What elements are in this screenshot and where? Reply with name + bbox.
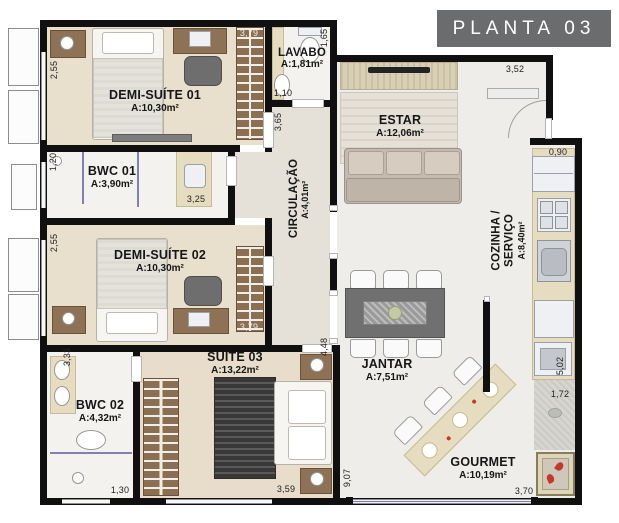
wall: [40, 20, 337, 27]
lamp: [60, 36, 74, 50]
plan-title: PLANTA 03: [437, 10, 611, 47]
burner: [555, 201, 568, 214]
sofa-backrest: [346, 178, 460, 202]
exterior-ledge: [8, 90, 39, 144]
door-opening: [263, 256, 274, 286]
dim-label: 4,48: [319, 332, 329, 362]
tv: [368, 67, 430, 73]
dim-label: 3,25: [181, 194, 211, 204]
door-jamb: [329, 253, 338, 259]
bwc01-sink: [184, 164, 206, 188]
window: [41, 162, 46, 208]
bed-blanket: [97, 239, 167, 309]
wardrobe-demi-suite-02: [236, 246, 264, 332]
dim-label: 3,79: [234, 322, 264, 332]
entry-door-leaf: [545, 118, 552, 139]
dim-label: 3,33: [62, 342, 72, 372]
door-opening: [292, 99, 324, 108]
dim-label: 3,59: [271, 484, 301, 494]
shower-glass: [82, 152, 84, 204]
burner: [540, 201, 553, 214]
wall: [40, 218, 235, 225]
bed-blanket-dark: [214, 377, 276, 479]
bed-bench: [112, 134, 192, 142]
centerpiece-flower: [388, 306, 402, 320]
laptop: [188, 312, 210, 327]
bed-blanket: [93, 58, 163, 138]
floor-plan: DEMI-SUÍTE 01 A:10,30m² LAVABO A:1,81m² …: [0, 0, 619, 523]
dining-chair: [383, 270, 409, 289]
wall: [575, 138, 582, 505]
dim-label: 1,10: [268, 88, 298, 98]
dim-label: 1,65: [319, 23, 329, 53]
exterior-ledge: [8, 238, 39, 292]
grill-grate: [542, 458, 569, 490]
dining-chair: [416, 339, 442, 358]
wall: [40, 145, 240, 152]
dining-chair: [416, 270, 442, 289]
exterior-ledge: [8, 294, 39, 340]
dim-label: 2,55: [49, 55, 59, 85]
shower-drain: [72, 472, 84, 484]
dim-label: 1,30: [105, 485, 135, 495]
dim-label: 5,02: [555, 351, 565, 381]
wardrobe-demi-suite-01: [236, 27, 264, 140]
floor-circulacao-west: [235, 152, 272, 218]
wall: [330, 258, 337, 292]
sofa-cushion: [424, 151, 460, 175]
laptop: [189, 31, 211, 47]
window: [166, 499, 272, 504]
door-stop: [531, 497, 538, 504]
toilet: [76, 430, 106, 450]
burner: [540, 216, 553, 229]
dim-label: 1,72: [545, 389, 575, 399]
sofa-cushion: [348, 151, 384, 175]
wall: [546, 62, 553, 120]
bed-pillow: [288, 426, 326, 460]
window: [41, 240, 46, 336]
dining-chair: [350, 270, 376, 289]
dining-chair: [350, 339, 376, 358]
fridge: [532, 156, 575, 192]
burner: [555, 216, 568, 229]
dim-label: 3,79: [234, 28, 264, 38]
fridge-door-line: [534, 173, 573, 174]
floor-drain: [548, 408, 562, 418]
console-table: [487, 88, 539, 99]
wall: [333, 352, 340, 498]
plan-title-text: PLANTA 03: [453, 18, 596, 40]
dim-label: 3,65: [273, 107, 283, 137]
kitchen-sink-basin: [541, 248, 567, 276]
exterior-ledge: [11, 164, 37, 210]
wall: [40, 345, 340, 352]
door-opening: [226, 156, 237, 186]
window: [41, 52, 46, 140]
dim-label: 2,55: [49, 228, 59, 258]
window: [62, 499, 110, 504]
door-jamb: [329, 338, 338, 344]
lamp: [310, 472, 324, 486]
toilet: [300, 37, 320, 63]
wall: [330, 20, 337, 212]
dim-label: 0,90: [543, 147, 573, 157]
bwc02-sink: [54, 386, 70, 406]
door-opening: [131, 356, 142, 382]
wall: [483, 300, 490, 392]
dim-label: 3,70: [509, 486, 539, 496]
shower-glass: [137, 150, 139, 207]
exterior-ledge: [8, 28, 39, 86]
bed-pillow: [106, 312, 158, 334]
door-jamb: [329, 205, 338, 211]
door-stop: [346, 497, 353, 504]
dining-chair: [383, 339, 409, 358]
wardrobe-suite-03: [143, 378, 179, 496]
sliding-glass-door: [346, 499, 538, 504]
dim-label: 1,20: [48, 147, 58, 177]
wall: [333, 55, 553, 62]
bed-pillow: [288, 390, 326, 424]
dim-label: 9,07: [342, 463, 352, 493]
shower-glass: [50, 452, 132, 454]
bed-pillow: [102, 32, 154, 54]
desk-chair: [184, 276, 222, 306]
door-jamb: [329, 290, 338, 296]
dim-label: 3,52: [500, 64, 530, 74]
door-jamb: [484, 296, 490, 302]
washer: [534, 300, 574, 338]
desk-chair: [184, 56, 222, 86]
lamp: [62, 312, 75, 325]
sofa-cushion: [386, 151, 422, 175]
